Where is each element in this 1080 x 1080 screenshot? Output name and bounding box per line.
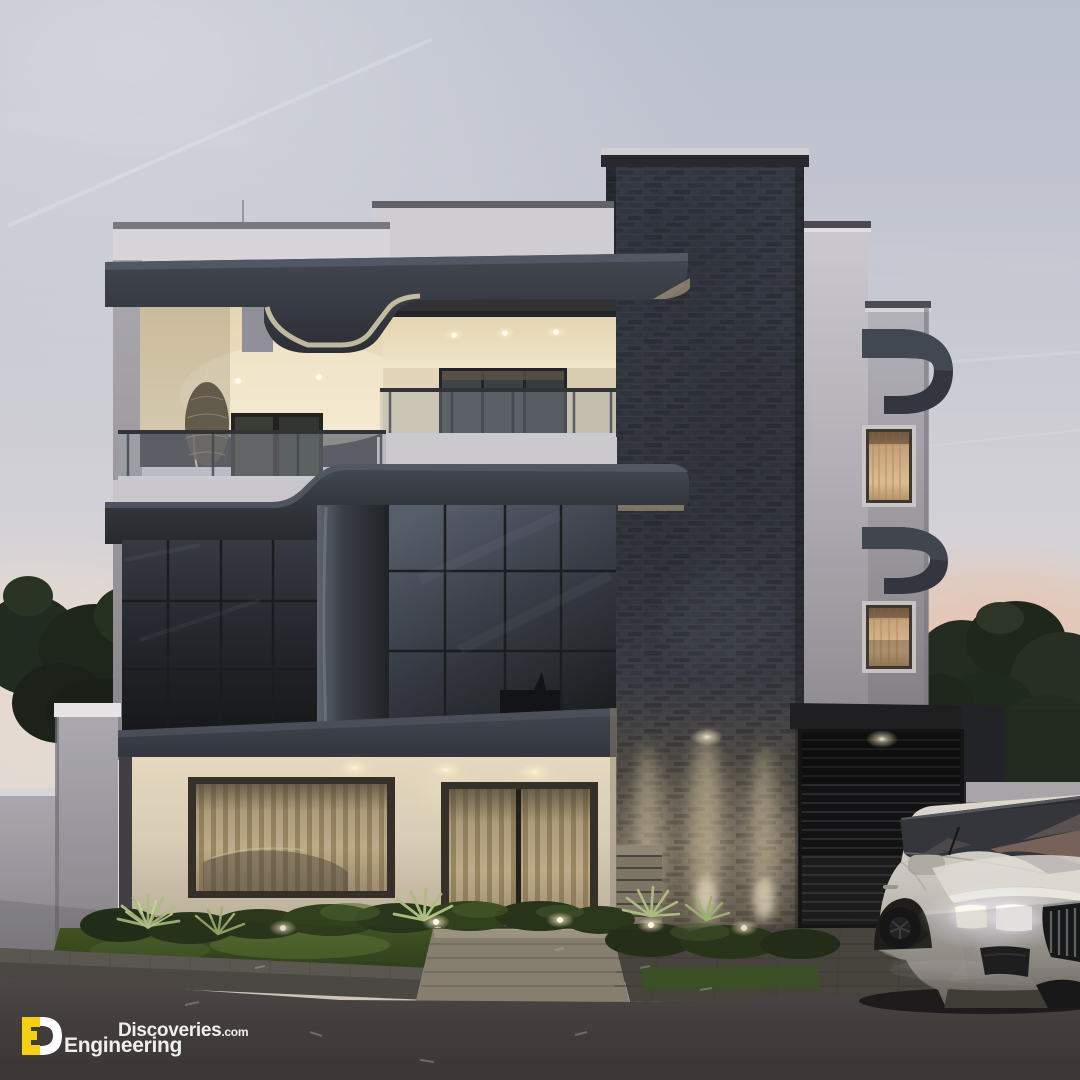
- svg-text:Engineering: Engineering: [64, 1034, 182, 1057]
